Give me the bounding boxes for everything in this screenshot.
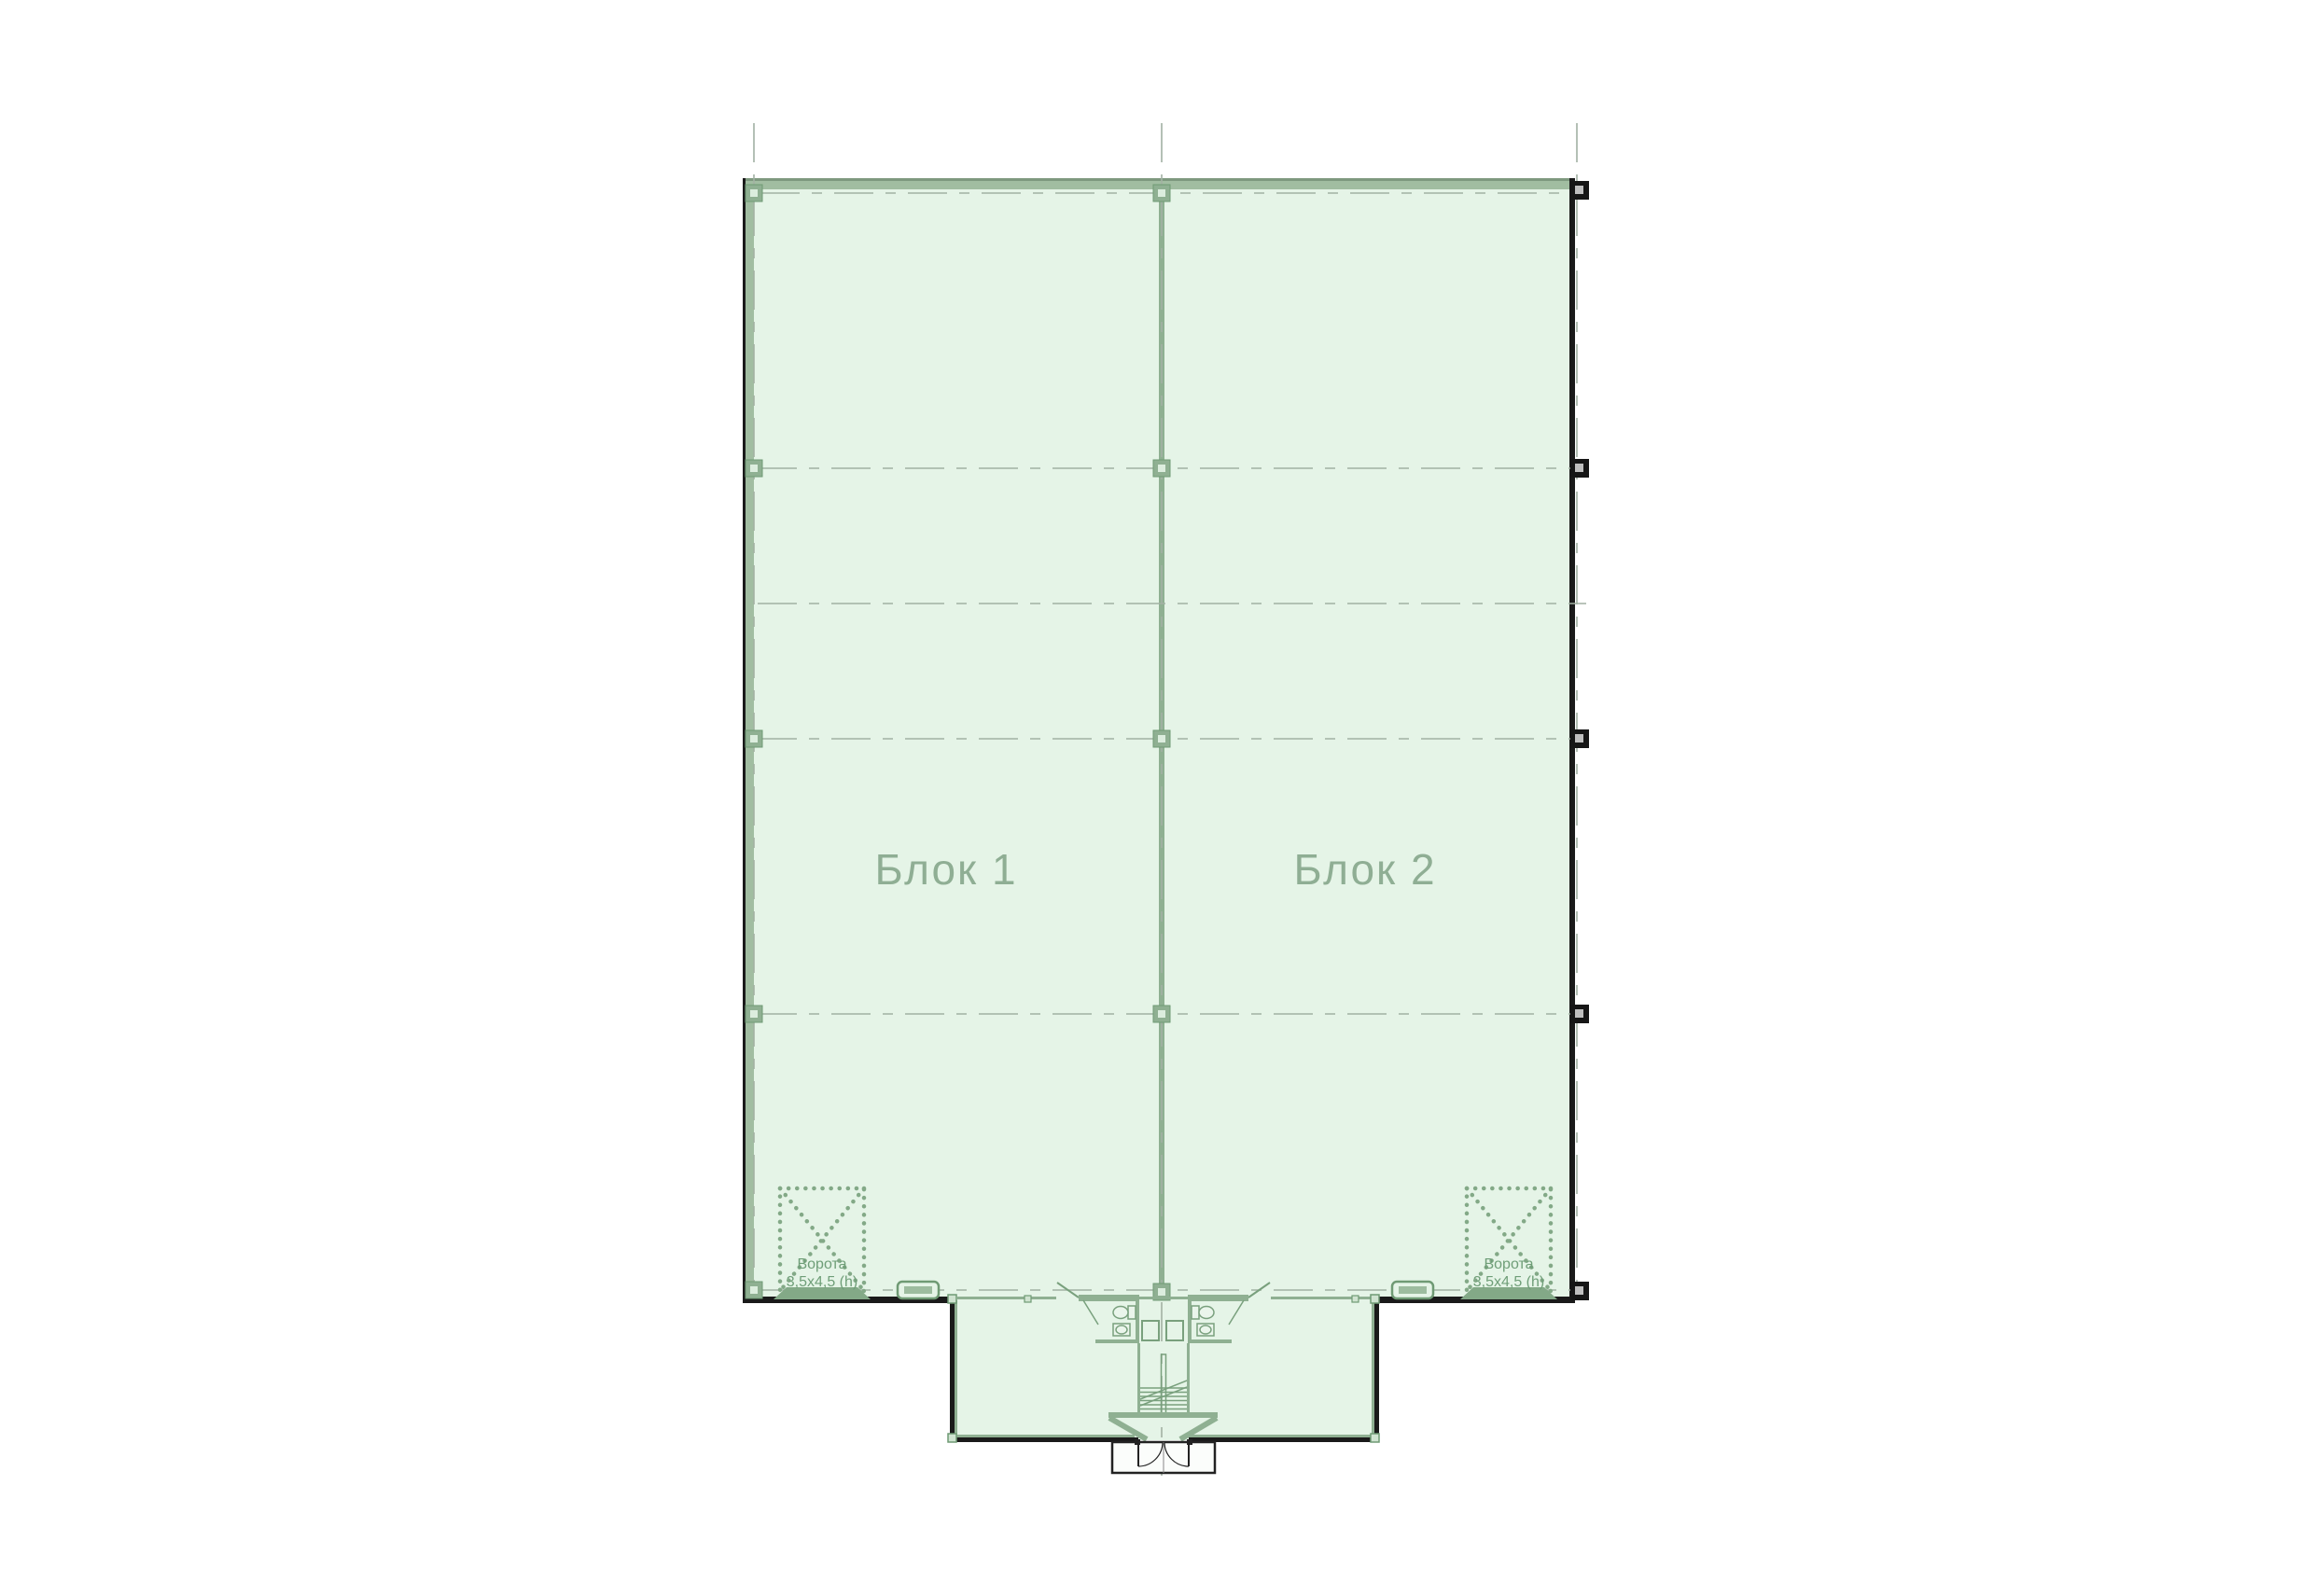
column-core — [750, 1010, 758, 1018]
gate-left-label-line1: Ворота — [797, 1256, 846, 1272]
vestibule-lining — [1189, 1435, 1372, 1437]
column-core — [750, 189, 758, 197]
toilet-icon — [1128, 1306, 1136, 1319]
vestibule-left-wall — [950, 1297, 955, 1442]
wc-north-wall — [1079, 1295, 1139, 1301]
column-core — [1158, 465, 1165, 472]
column-core — [1158, 1288, 1165, 1296]
gate-left-label-line2: 3,5х4,5 (h) — [787, 1274, 857, 1290]
vestibule-lining — [957, 1435, 1135, 1437]
vestibule-lining — [1372, 1300, 1374, 1437]
column-core — [750, 735, 758, 742]
vestibule-top-wall — [957, 1297, 1056, 1299]
door-box-core — [1399, 1286, 1427, 1294]
door-hinge-block — [1187, 1439, 1192, 1445]
column-core — [1575, 186, 1583, 194]
wall-junction-block — [1371, 1295, 1379, 1303]
floor-plan-canvas: Ворота 3,5х4,5 (h) Ворота 3,5х4,5 (h) — [0, 0, 2314, 1596]
service-door-right — [1392, 1282, 1433, 1298]
wall-tick — [1025, 1296, 1031, 1302]
door-box-core — [904, 1286, 932, 1294]
toilet-icon — [1192, 1306, 1199, 1319]
wall-junction-block — [1371, 1434, 1379, 1442]
column-core — [1575, 464, 1583, 472]
block1-label: Блок 1 — [874, 845, 1017, 894]
column-core — [1575, 734, 1583, 742]
wall-tick — [1352, 1296, 1359, 1302]
column-core — [750, 465, 758, 472]
vestibule-fill — [953, 1300, 1377, 1440]
stair-landing-edge — [1108, 1412, 1218, 1418]
column-core — [750, 1286, 758, 1294]
wc-south-wall — [1188, 1339, 1232, 1343]
wall-junction-block — [948, 1295, 956, 1303]
wc-south-wall — [1095, 1339, 1139, 1343]
stair-rail — [1137, 1343, 1140, 1414]
column-core — [1158, 189, 1165, 197]
gate-right-label-line1: Ворота — [1484, 1256, 1533, 1272]
stair-rail — [1187, 1343, 1190, 1414]
top-wall-edge — [744, 178, 1575, 181]
column-core — [1158, 1010, 1165, 1018]
column-core — [1158, 735, 1165, 742]
column-core — [1575, 1286, 1583, 1295]
vestibule-right-wall — [1374, 1297, 1379, 1442]
column-core — [1575, 1009, 1583, 1018]
wall-junction-block — [948, 1434, 956, 1442]
service-door-left — [898, 1282, 939, 1298]
toilet-icon — [1113, 1307, 1128, 1319]
gate-right-label-line2: 3,5х4,5 (h) — [1473, 1274, 1544, 1290]
block2-label: Блок 2 — [1293, 845, 1436, 894]
door-hinge-block — [1135, 1439, 1140, 1445]
wc-north-wall — [1188, 1295, 1248, 1301]
floor-plan-drawing: Ворота 3,5х4,5 (h) Ворота 3,5х4,5 (h) — [0, 0, 2314, 1596]
vestibule-bottom-wall-left — [950, 1437, 1138, 1442]
vestibule-lining — [955, 1300, 957, 1437]
toilet-icon — [1199, 1307, 1214, 1319]
vestibule-bottom-wall-right — [1189, 1437, 1379, 1442]
entrance-porch — [1112, 1439, 1215, 1473]
